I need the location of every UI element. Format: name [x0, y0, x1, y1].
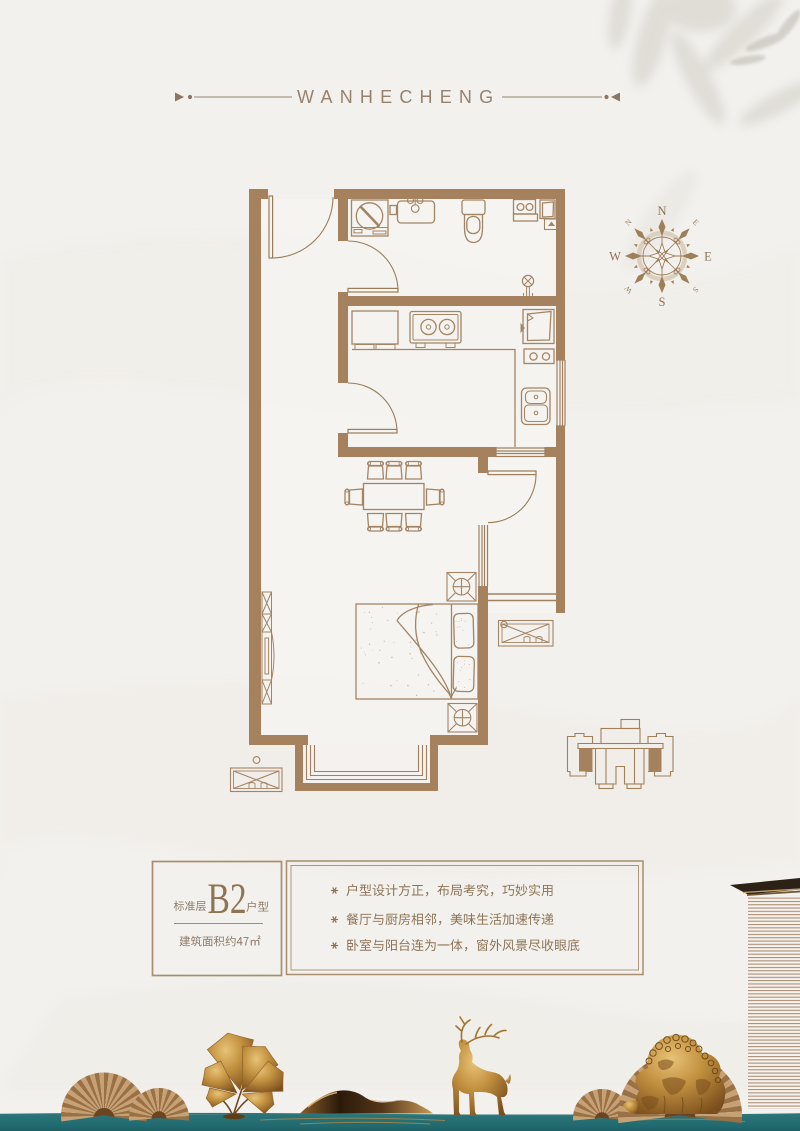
svg-text:W: W — [609, 250, 621, 264]
svg-text:B2: B2 — [208, 876, 247, 923]
svg-text:WANHECHENG: WANHECHENG — [297, 87, 500, 107]
svg-text:N: N — [657, 204, 666, 218]
svg-text:E: E — [704, 250, 712, 264]
svg-text:S: S — [659, 295, 666, 309]
